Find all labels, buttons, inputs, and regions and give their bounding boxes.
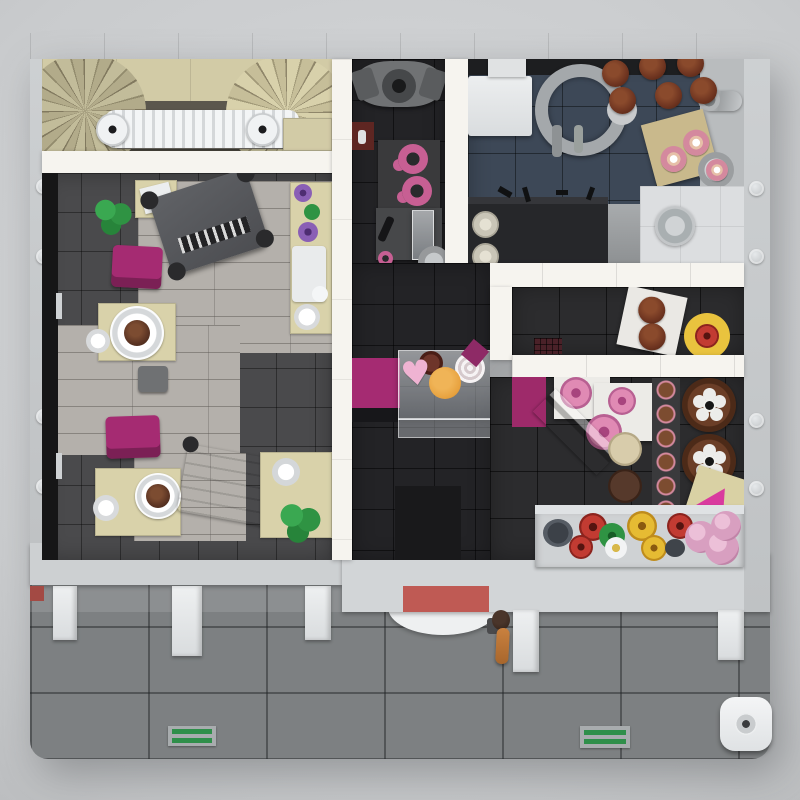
- awning-pillar: [305, 586, 331, 640]
- wall-cafe-east: [332, 59, 352, 560]
- bread-bun: [602, 60, 629, 87]
- stud: [749, 413, 764, 428]
- drain-bar: [172, 738, 212, 743]
- faucet-handle: [552, 125, 562, 157]
- wall-bakery-south: [512, 355, 744, 377]
- chocolate-cake: [146, 484, 170, 508]
- rose-cake-pink: [608, 387, 636, 415]
- awning-pillar: [53, 586, 77, 640]
- vent-grille: [534, 338, 562, 354]
- black-bottle: [377, 215, 395, 242]
- flower-white: [605, 537, 627, 559]
- carnation-pink: [711, 511, 741, 541]
- frosting-center: [705, 457, 714, 466]
- window-flower-box: [535, 505, 744, 567]
- frosting-center: [705, 401, 714, 410]
- cafe-room: [42, 173, 332, 560]
- tea-cup: [312, 286, 328, 302]
- drain-bar: [584, 730, 626, 735]
- wall-kitchen-south: [468, 263, 744, 287]
- radiator-wheel-left: [96, 113, 129, 146]
- coffee-cup: [93, 495, 119, 521]
- awning-pillar: [172, 586, 202, 656]
- border-top: [30, 33, 770, 59]
- pedestrian-minifig: [485, 610, 515, 666]
- drain-bar: [172, 729, 212, 734]
- entrance-mat-red: [403, 586, 489, 612]
- wall-tab: [56, 293, 62, 319]
- display-case-glass: ♥: [398, 350, 490, 420]
- teapot-white: [294, 304, 320, 330]
- coffee-machine-wing: [418, 66, 445, 101]
- table-center-ring: [735, 713, 757, 735]
- kitchen: [468, 59, 744, 263]
- cafe-stool: [138, 366, 168, 392]
- muffin: [636, 294, 668, 326]
- bread-bun: [639, 59, 666, 80]
- stud: [749, 249, 764, 264]
- left-red-accent: [30, 586, 44, 601]
- heart-cookie: ♥: [399, 355, 434, 393]
- radiator-wheel-right: [246, 113, 279, 146]
- flower-pot: [665, 539, 685, 557]
- kitchen-appliance: [608, 204, 640, 263]
- canister: [472, 211, 499, 238]
- entry-room: ♥: [352, 263, 490, 560]
- coffee-machine-wing: [352, 66, 380, 101]
- hallway: [42, 59, 332, 151]
- potted-plant: [90, 196, 134, 236]
- lego-building-top-view: ♥: [30, 33, 770, 759]
- coffee-cup: [86, 329, 110, 353]
- scene-background: ♥: [0, 0, 800, 800]
- teapot-green: [304, 204, 320, 220]
- chocolate-cake: [124, 320, 150, 346]
- cookie-stack: [652, 378, 680, 524]
- dark-floor-mat: [395, 486, 461, 560]
- border-right: [744, 59, 770, 612]
- rose-yellow: [641, 535, 667, 561]
- wall-hallway-south: [42, 151, 332, 173]
- piano-keyboard: [178, 216, 251, 253]
- bread-bun: [690, 77, 717, 104]
- wall-bakery-west: [490, 287, 512, 360]
- fridge-top-unit: [488, 59, 526, 77]
- sideboard: [290, 182, 332, 334]
- bread-bun: [609, 87, 636, 114]
- donut: [706, 159, 728, 181]
- drain-bar: [584, 739, 626, 744]
- bread-bun: [655, 82, 682, 109]
- flower-vase-purple: [294, 184, 312, 202]
- rose-cake: [695, 324, 719, 348]
- kitchen-stool: [655, 206, 695, 246]
- stud: [749, 181, 764, 196]
- chocolate-flower-cake: [682, 378, 736, 432]
- pink-mug: [398, 144, 428, 174]
- potted-plant: [275, 500, 323, 544]
- stud: [749, 481, 764, 496]
- awning-pillar: [513, 610, 539, 672]
- wall-utility-east: [445, 59, 468, 263]
- utensil: [556, 190, 568, 195]
- step-pad: [283, 118, 332, 151]
- display-case-front: [398, 418, 490, 438]
- fridge: [468, 76, 532, 136]
- coffee-machine: [356, 61, 442, 107]
- coffee-mug: [272, 458, 300, 486]
- cafe-chair-magenta: [105, 415, 160, 459]
- flower-vase-purple: [298, 222, 318, 242]
- muffin: [636, 321, 668, 353]
- drain-grate: [580, 726, 630, 748]
- outdoor-round-table: [720, 697, 772, 751]
- faucet-handle: [574, 125, 583, 153]
- cream-cake: [608, 432, 642, 466]
- bakery-upper-room: [512, 287, 744, 355]
- coffee-machine-top: [382, 69, 416, 103]
- brown-cake: [608, 469, 642, 503]
- wall-tab: [56, 453, 62, 479]
- orange-cookie: [429, 367, 461, 399]
- rose-cake-yellow-plate: [684, 313, 730, 355]
- canister: [472, 243, 499, 263]
- red-crate: [352, 122, 374, 150]
- muffin-box: [616, 287, 687, 355]
- minifig-body: [495, 628, 510, 665]
- cafe-chair-magenta: [111, 245, 163, 290]
- awning-pillar: [718, 610, 744, 660]
- pink-mug: [402, 176, 432, 206]
- drain-grate: [168, 726, 216, 746]
- rose-red: [569, 535, 593, 559]
- cafe-dark-wall-strip: [42, 173, 58, 560]
- crate-knob: [358, 130, 366, 144]
- display-counter-shadow: [352, 408, 400, 422]
